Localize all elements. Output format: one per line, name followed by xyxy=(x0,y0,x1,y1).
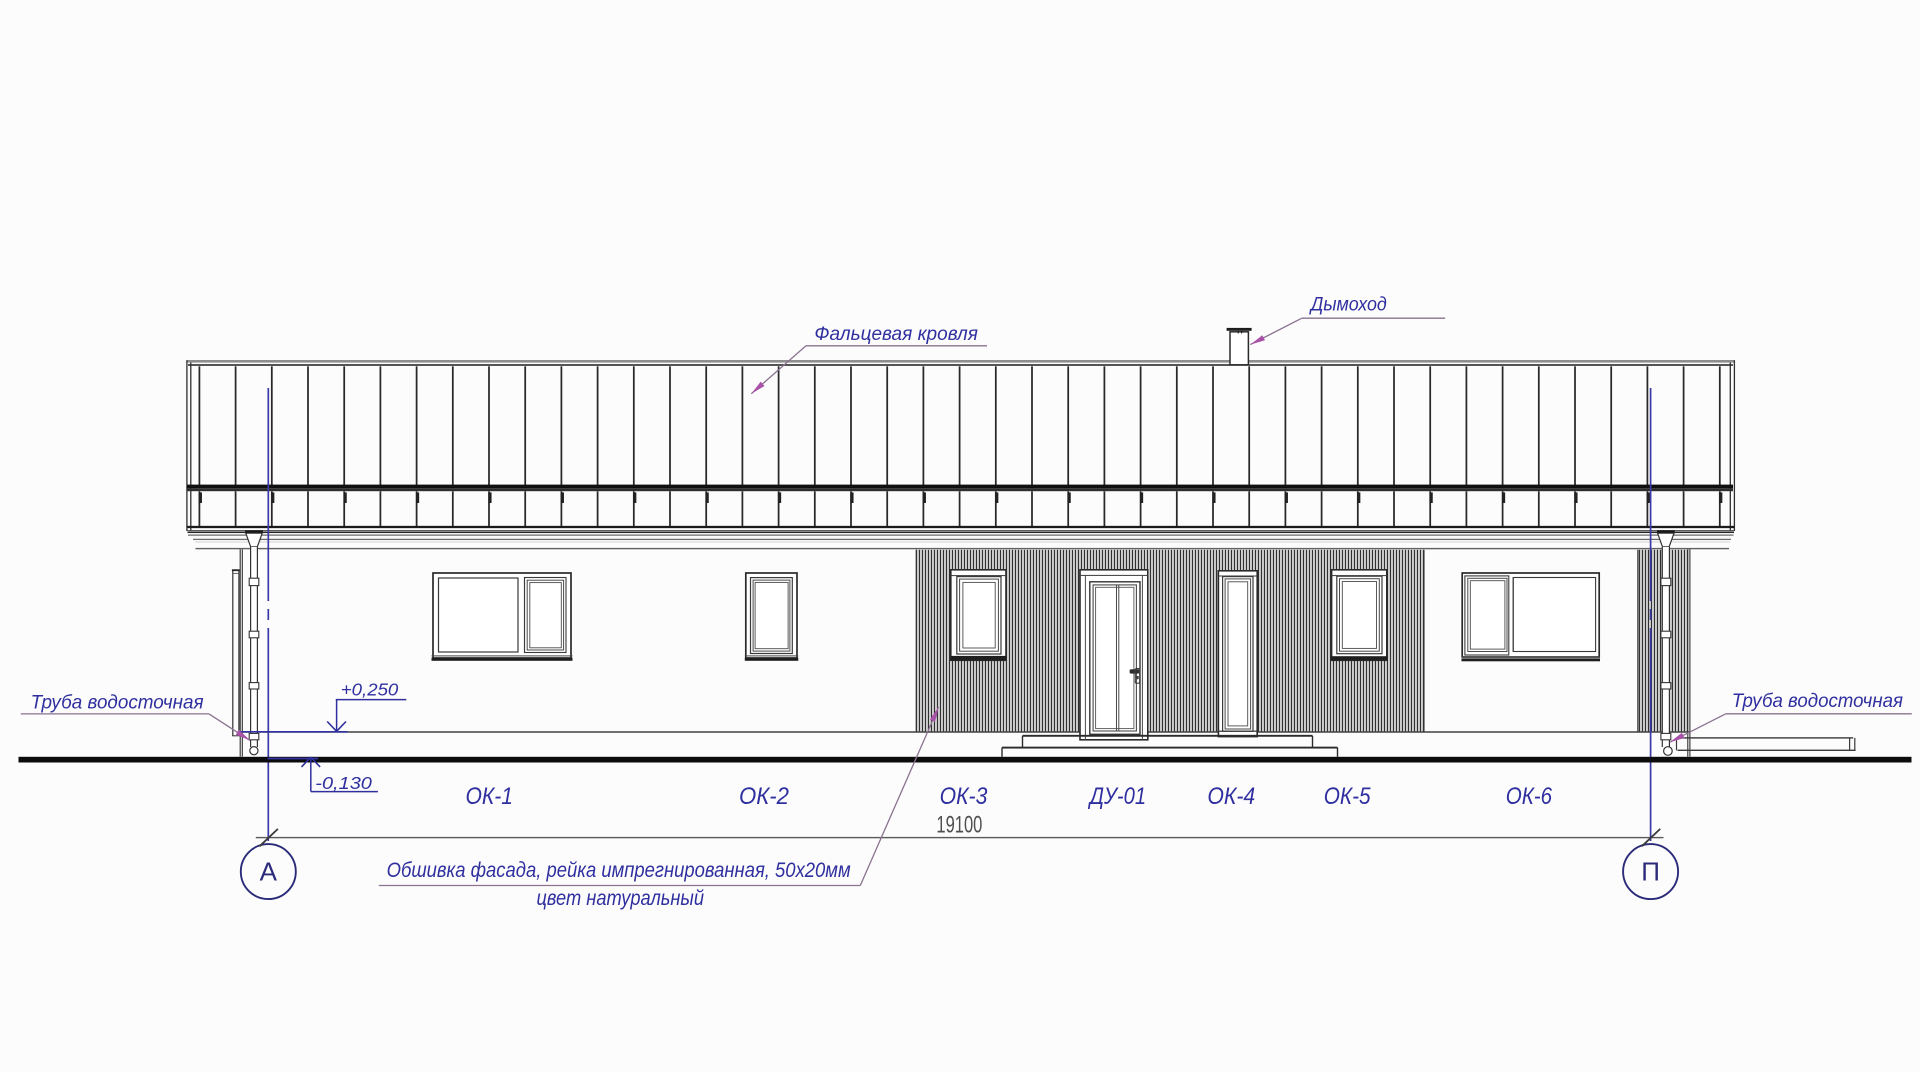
svg-text:цвет натуральный: цвет натуральный xyxy=(537,887,705,910)
svg-text:ОК-5: ОК-5 xyxy=(1324,783,1371,810)
svg-text:Дымоход: Дымоход xyxy=(1309,295,1387,316)
svg-text:-0,130: -0,130 xyxy=(315,773,372,793)
svg-text:ОК-4: ОК-4 xyxy=(1207,783,1255,810)
svg-text:А: А xyxy=(260,857,278,887)
svg-text:ОК-1: ОК-1 xyxy=(465,783,513,810)
svg-text:ОК-2: ОК-2 xyxy=(739,783,789,810)
svg-text:+0,250: +0,250 xyxy=(341,679,399,699)
svg-text:Труба водосточная: Труба водосточная xyxy=(31,693,204,714)
svg-text:Фальцевая кровля: Фальцевая кровля xyxy=(814,324,978,345)
svg-text:Труба водосточная: Труба водосточная xyxy=(1732,691,1903,712)
svg-text:П: П xyxy=(1641,857,1660,887)
svg-text:19100: 19100 xyxy=(936,812,982,839)
svg-text:Обшивка фасада, рейка импрегни: Обшивка фасада, рейка импрегнированная, … xyxy=(387,859,851,882)
svg-text:ДУ-01: ДУ-01 xyxy=(1087,783,1146,810)
svg-text:ОК-3: ОК-3 xyxy=(940,783,988,810)
svg-text:ОК-6: ОК-6 xyxy=(1506,783,1553,810)
